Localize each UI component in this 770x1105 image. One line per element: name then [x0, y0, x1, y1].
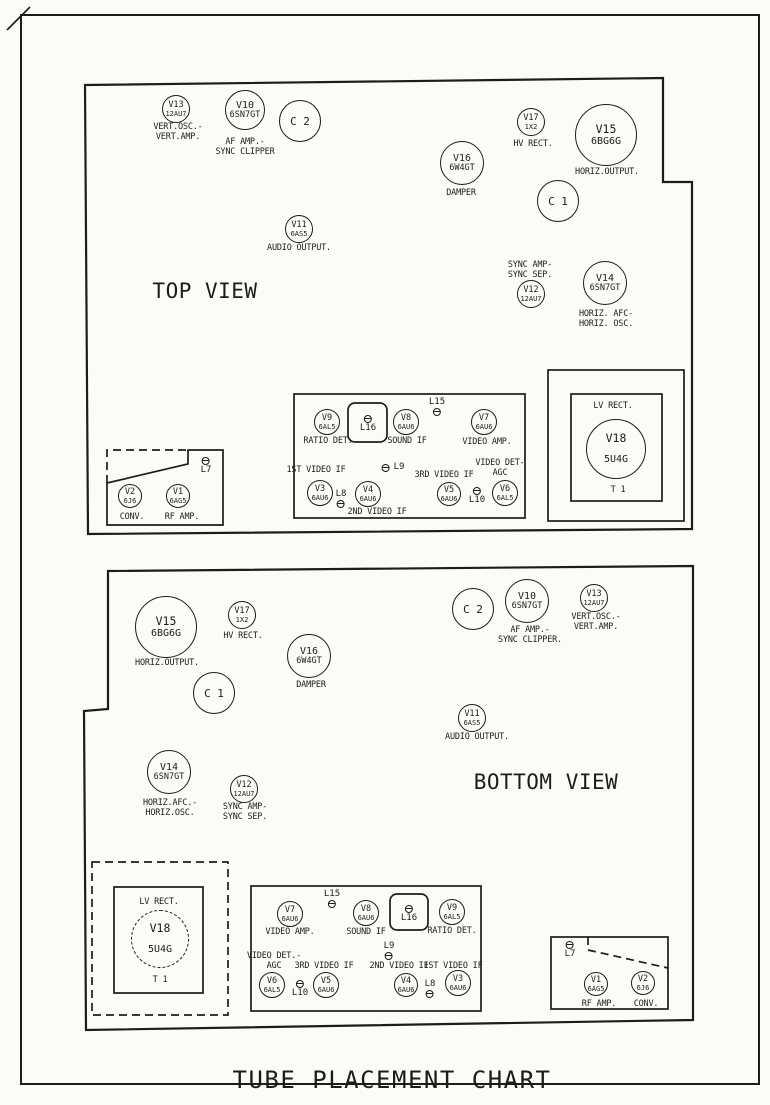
tube-v18: V185U4G	[131, 910, 189, 968]
coil-label: L10	[469, 496, 485, 505]
tube-v16: V166W4GT	[287, 634, 331, 678]
adjustment-screw-icon	[426, 990, 434, 998]
tube-designator: V1	[173, 488, 183, 497]
tube-designator: V6	[500, 485, 510, 494]
tube-type: 6AU6	[282, 915, 299, 923]
tube-v4: V46AU6	[394, 973, 418, 997]
tube-designator: V13	[168, 101, 183, 110]
tube-v1: V16AG5	[584, 972, 608, 996]
coil-label: L9	[384, 942, 395, 951]
tube-v10: V106SN7GT	[505, 579, 549, 623]
tube-type: 6AU6	[476, 423, 493, 431]
label-horiz-output: HORIZ.OUTPUT.	[575, 168, 639, 178]
tube-v11: V116AS5	[458, 704, 486, 732]
tube-designator: V11	[291, 221, 306, 230]
label-t-1: T 1	[611, 486, 626, 496]
tube-designator: V2	[638, 975, 648, 984]
tube-type: 6AU6	[312, 494, 329, 502]
tube-v2: V26J6	[631, 971, 655, 995]
tube-type: 6W4GT	[449, 164, 475, 174]
tube-placement-chart-page: TOP VIEWV1312AU7V106SN7GTC 2V171X2V156BG…	[0, 0, 770, 1105]
tube-v14: V146SN7GT	[583, 261, 627, 305]
tube-type: 12AU7	[233, 790, 254, 798]
tube-designator: V12	[236, 781, 251, 790]
label-line: T 1	[153, 976, 168, 986]
coil-label: L7	[201, 466, 212, 475]
label-t-1: T 1	[153, 976, 168, 986]
tube-type: 6AG5	[588, 985, 605, 993]
coil-label: L8	[336, 490, 347, 499]
tube-designator: V8	[401, 414, 411, 423]
label-line: HV RECT.	[513, 140, 552, 150]
label-3rd-video-if: 3RD VIDEO IF	[294, 962, 353, 972]
tube-v17: V171X2	[517, 108, 545, 136]
tube-v7: V76AU6	[471, 409, 497, 435]
label-line: VERT.AMP.	[153, 133, 202, 143]
tube-type: 6AL5	[319, 423, 336, 431]
tube-type: 6BG6G	[151, 628, 181, 640]
tube-designator: V4	[363, 486, 373, 495]
tube-v9: V96AL5	[314, 409, 340, 435]
label-af-amp-sync-clipper: AF AMP.-SYNC CLIPPER	[215, 138, 274, 157]
tube-type: 6SN7GT	[230, 111, 261, 121]
label-line: 2ND VIDEO IF	[347, 508, 406, 518]
cap-c-1: C 1	[193, 672, 235, 714]
label-line: 1ST VIDEO IF	[423, 962, 482, 972]
tube-v13: V1312AU7	[162, 95, 190, 123]
coil-l9: L9	[382, 463, 405, 472]
coil-l7: L7	[201, 457, 212, 475]
tube-type: 6SN7GT	[154, 773, 185, 783]
tube-designator: V12	[523, 286, 538, 295]
adjustment-screw-icon	[473, 487, 481, 495]
tube-v8: V86AU6	[353, 900, 379, 926]
cap-designator: C 2	[290, 116, 310, 127]
label-line: 3RD VIDEO IF	[414, 471, 473, 481]
tube-type: 1X2	[236, 616, 249, 624]
tube-v3: V36AU6	[307, 480, 333, 506]
tube-designator: V2	[125, 488, 135, 497]
adjustment-screw-icon	[405, 905, 413, 913]
bottom-view-title: BOTTOM VIEW	[474, 770, 619, 794]
label-rf-amp: RF AMP.	[582, 1000, 616, 1010]
tube-designator: V4	[401, 977, 411, 986]
label-line: T 1	[611, 486, 626, 496]
label-line: RATIO DET.	[427, 927, 476, 937]
label-sync-amp-sync-sep: SYNC AMP-SYNC SEP.	[223, 803, 267, 822]
tube-designator: V5	[444, 486, 454, 495]
adjustment-screw-icon	[296, 980, 304, 988]
label-line: RATIO DET.	[303, 437, 352, 447]
tube-type: 6AL5	[497, 494, 514, 502]
tube-v16: V166W4GT	[440, 141, 484, 185]
tube-designator: V15	[156, 615, 177, 628]
label-lv-rect: LV RECT.	[139, 898, 178, 908]
adjustment-screw-icon	[364, 415, 372, 423]
tube-v8: V86AU6	[393, 409, 419, 435]
tube-type: 6AU6	[360, 495, 377, 503]
coil-l7: L7	[565, 941, 576, 959]
coil-label: L16	[401, 914, 417, 923]
label-line: VIDEO AMP.	[265, 928, 314, 938]
tube-type: 6AS5	[291, 230, 308, 238]
tube-designator: V15	[596, 123, 617, 136]
tube-v10: V106SN7GT	[225, 90, 265, 130]
coil-label: L7	[565, 950, 576, 959]
label-video-det-agc: VIDEO DET.-AGC	[247, 952, 301, 971]
label-line: LV RECT.	[139, 898, 178, 908]
tube-v13: V1312AU7	[580, 584, 608, 612]
label-line: LV RECT.	[593, 402, 632, 412]
tube-v2: V26J6	[118, 484, 142, 508]
label-line: AUDIO OUTPUT.	[445, 733, 509, 743]
top-view-title: TOP VIEW	[152, 279, 257, 303]
label-line: SOUND IF	[346, 928, 385, 938]
label-line: AGC	[475, 469, 524, 479]
label-damper: DAMPER	[296, 681, 326, 691]
coil-l15: L15	[324, 890, 340, 908]
label-1st-video-if: 1ST VIDEO IF	[423, 962, 482, 972]
tube-type: 6J6	[124, 497, 137, 505]
cap-designator: C 2	[463, 604, 483, 615]
label-line: SOUND IF	[387, 437, 426, 447]
label-audio-output: AUDIO OUTPUT.	[445, 733, 509, 743]
tube-type: 12AU7	[520, 295, 541, 303]
tube-v12: V1212AU7	[230, 775, 258, 803]
label-line: RF AMP.	[165, 513, 199, 523]
tube-v6: V66AL5	[492, 480, 518, 506]
label-line: VERT.AMP.	[571, 623, 620, 633]
tube-v5: V56AU6	[313, 972, 339, 998]
tube-v4: V46AU6	[355, 481, 381, 507]
tube-v6: V66AL5	[259, 972, 285, 998]
label-line: DAMPER	[296, 681, 326, 691]
tube-v3: V36AU6	[445, 970, 471, 996]
tube-v9: V96AL5	[439, 899, 465, 925]
label-line: SYNC CLIPPER	[215, 148, 274, 158]
label-3rd-video-if: 3RD VIDEO IF	[414, 471, 473, 481]
coil-l16: L16	[401, 905, 417, 923]
label-video-amp: VIDEO AMP.	[265, 928, 314, 938]
label-line: CONV.	[634, 1000, 659, 1010]
chart-title: TUBE PLACEMENT CHART	[233, 1066, 552, 1094]
label-horiz-afc-horiz-osc: HORIZ.AFC.-HORIZ.OSC.	[143, 799, 197, 818]
label-2nd-video-if: 2ND VIDEO IF	[347, 508, 406, 518]
coil-label: L9	[394, 463, 405, 472]
tube-designator: V9	[447, 904, 457, 913]
coil-label: L15	[324, 890, 340, 899]
tube-v18: V185U4G	[586, 419, 646, 479]
label-conv: CONV.	[120, 513, 145, 523]
diagram-layer: TOP VIEWV1312AU7V106SN7GTC 2V171X2V156BG…	[0, 0, 770, 1105]
label-line: CONV.	[120, 513, 145, 523]
cap-c-1: C 1	[537, 180, 579, 222]
tube-type: 6AG5	[170, 497, 187, 505]
tube-designator: V7	[285, 906, 295, 915]
label-horiz-afc-horiz-osc: HORIZ. AFC-HORIZ. OSC.	[579, 310, 633, 329]
cap-c-2: C 2	[279, 100, 321, 142]
coil-l16: L16	[360, 415, 376, 433]
tube-designator: V18	[150, 922, 171, 935]
tube-type: 6BG6G	[591, 136, 621, 148]
tube-designator: V5	[321, 977, 331, 986]
tube-type: 5U4G	[604, 454, 628, 466]
tube-designator: V9	[322, 414, 332, 423]
cap-designator: C 1	[204, 688, 224, 699]
label-sync-amp-sync-sep: SYNC AMP-SYNC SEP.	[508, 261, 552, 280]
label-line: AGC	[247, 962, 301, 972]
label-video-amp: VIDEO AMP.	[462, 438, 511, 448]
tube-designator: V13	[586, 590, 601, 599]
tube-v12: V1212AU7	[517, 280, 545, 308]
tube-designator: V17	[523, 114, 538, 123]
tube-type: 6J6	[637, 984, 650, 992]
tube-v1: V16AG5	[166, 484, 190, 508]
adjustment-screw-icon	[566, 941, 574, 949]
label-line: 1ST VIDEO IF	[286, 466, 345, 476]
label-vert-osc-vert-amp: VERT.OSC.-VERT.AMP.	[153, 123, 202, 142]
label-line: HV RECT.	[223, 632, 262, 642]
label-line: AUDIO OUTPUT.	[267, 244, 331, 254]
label-ratio-det: RATIO DET.	[303, 437, 352, 447]
adjustment-screw-icon	[382, 464, 390, 472]
coil-l15: L15	[429, 398, 445, 416]
tube-designator: V3	[315, 485, 325, 494]
label-af-amp-sync-clipper: AF AMP.-SYNC CLIPPER.	[498, 626, 562, 645]
tube-type: 6SN7GT	[590, 284, 621, 294]
tube-type: 6AU6	[318, 986, 335, 994]
label-conv: CONV.	[634, 1000, 659, 1010]
label-line: SYNC CLIPPER.	[498, 636, 562, 646]
tube-type: 6W4GT	[296, 657, 322, 667]
tube-type: 6AL5	[444, 913, 461, 921]
label-line: VIDEO AMP.	[462, 438, 511, 448]
label-line: HORIZ.OUTPUT.	[575, 168, 639, 178]
coil-l10: L10	[469, 487, 485, 505]
label-lv-rect: LV RECT.	[593, 402, 632, 412]
tube-type: 6AU6	[358, 914, 375, 922]
tube-v7: V76AU6	[277, 901, 303, 927]
label-line: HORIZ. OSC.	[579, 320, 633, 330]
label-damper: DAMPER	[446, 189, 476, 199]
tube-v15: V156BG6G	[575, 104, 637, 166]
tube-designator: V17	[234, 607, 249, 616]
tube-v5: V56AU6	[437, 482, 461, 506]
tube-designator: V1	[591, 976, 601, 985]
label-line: SYNC SEP.	[223, 813, 267, 823]
coil-l8: L8	[425, 980, 436, 998]
adjustment-screw-icon	[202, 457, 210, 465]
coil-label: L15	[429, 398, 445, 407]
label-horiz-output: HORIZ.OUTPUT.	[135, 659, 199, 669]
tube-v11: V116AS5	[285, 215, 313, 243]
coil-l10: L10	[292, 980, 308, 998]
adjustment-screw-icon	[385, 952, 393, 960]
label-hv-rect: HV RECT.	[513, 140, 552, 150]
label-hv-rect: HV RECT.	[223, 632, 262, 642]
label-rf-amp: RF AMP.	[165, 513, 199, 523]
label-line: RF AMP.	[582, 1000, 616, 1010]
label-line: 3RD VIDEO IF	[294, 962, 353, 972]
tube-type: 6AS5	[464, 719, 481, 727]
adjustment-screw-icon	[328, 900, 336, 908]
cap-c-2: C 2	[452, 588, 494, 630]
label-line: HORIZ.OSC.	[143, 809, 197, 819]
label-line: HORIZ.OUTPUT.	[135, 659, 199, 669]
tube-designator: V18	[606, 432, 627, 445]
coil-label: L16	[360, 424, 376, 433]
tube-v15: V156BG6G	[135, 596, 197, 658]
cap-designator: C 1	[548, 196, 568, 207]
tube-v14: V146SN7GT	[147, 750, 191, 794]
tube-v17: V171X2	[228, 601, 256, 629]
label-sound-if: SOUND IF	[387, 437, 426, 447]
tube-designator: V8	[361, 905, 371, 914]
tube-type: 6AU6	[398, 986, 415, 994]
label-audio-output: AUDIO OUTPUT.	[267, 244, 331, 254]
label-vert-osc-vert-amp: VERT.OSC.-VERT.AMP.	[571, 613, 620, 632]
label-ratio-det: RATIO DET.	[427, 927, 476, 937]
tube-type: 6AU6	[441, 495, 458, 503]
label-2nd-video-if: 2ND VIDEO IF	[369, 962, 428, 972]
tube-type: 12AU7	[165, 110, 186, 118]
tube-designator: V11	[464, 710, 479, 719]
tube-designator: V7	[479, 414, 489, 423]
tube-designator: V3	[453, 975, 463, 984]
tube-type: 6AL5	[264, 986, 281, 994]
coil-l8: L8	[336, 490, 347, 508]
label-line: 2ND VIDEO IF	[369, 962, 428, 972]
label-line: SYNC SEP.	[508, 271, 552, 281]
coil-label: L8	[425, 980, 436, 989]
tube-type: 12AU7	[583, 599, 604, 607]
adjustment-screw-icon	[337, 500, 345, 508]
label-line: DAMPER	[446, 189, 476, 199]
tube-type: 6AU6	[450, 984, 467, 992]
tube-designator: V6	[267, 977, 277, 986]
label-1st-video-if: 1ST VIDEO IF	[286, 466, 345, 476]
label-sound-if: SOUND IF	[346, 928, 385, 938]
label-video-det-agc: VIDEO DET-AGC	[475, 459, 524, 478]
adjustment-screw-icon	[433, 408, 441, 416]
coil-l9: L9	[384, 942, 395, 960]
tube-type: 5U4G	[148, 944, 172, 956]
tube-type: 6AU6	[398, 423, 415, 431]
tube-type: 6SN7GT	[512, 602, 543, 612]
tube-type: 1X2	[525, 123, 538, 131]
coil-label: L10	[292, 989, 308, 998]
